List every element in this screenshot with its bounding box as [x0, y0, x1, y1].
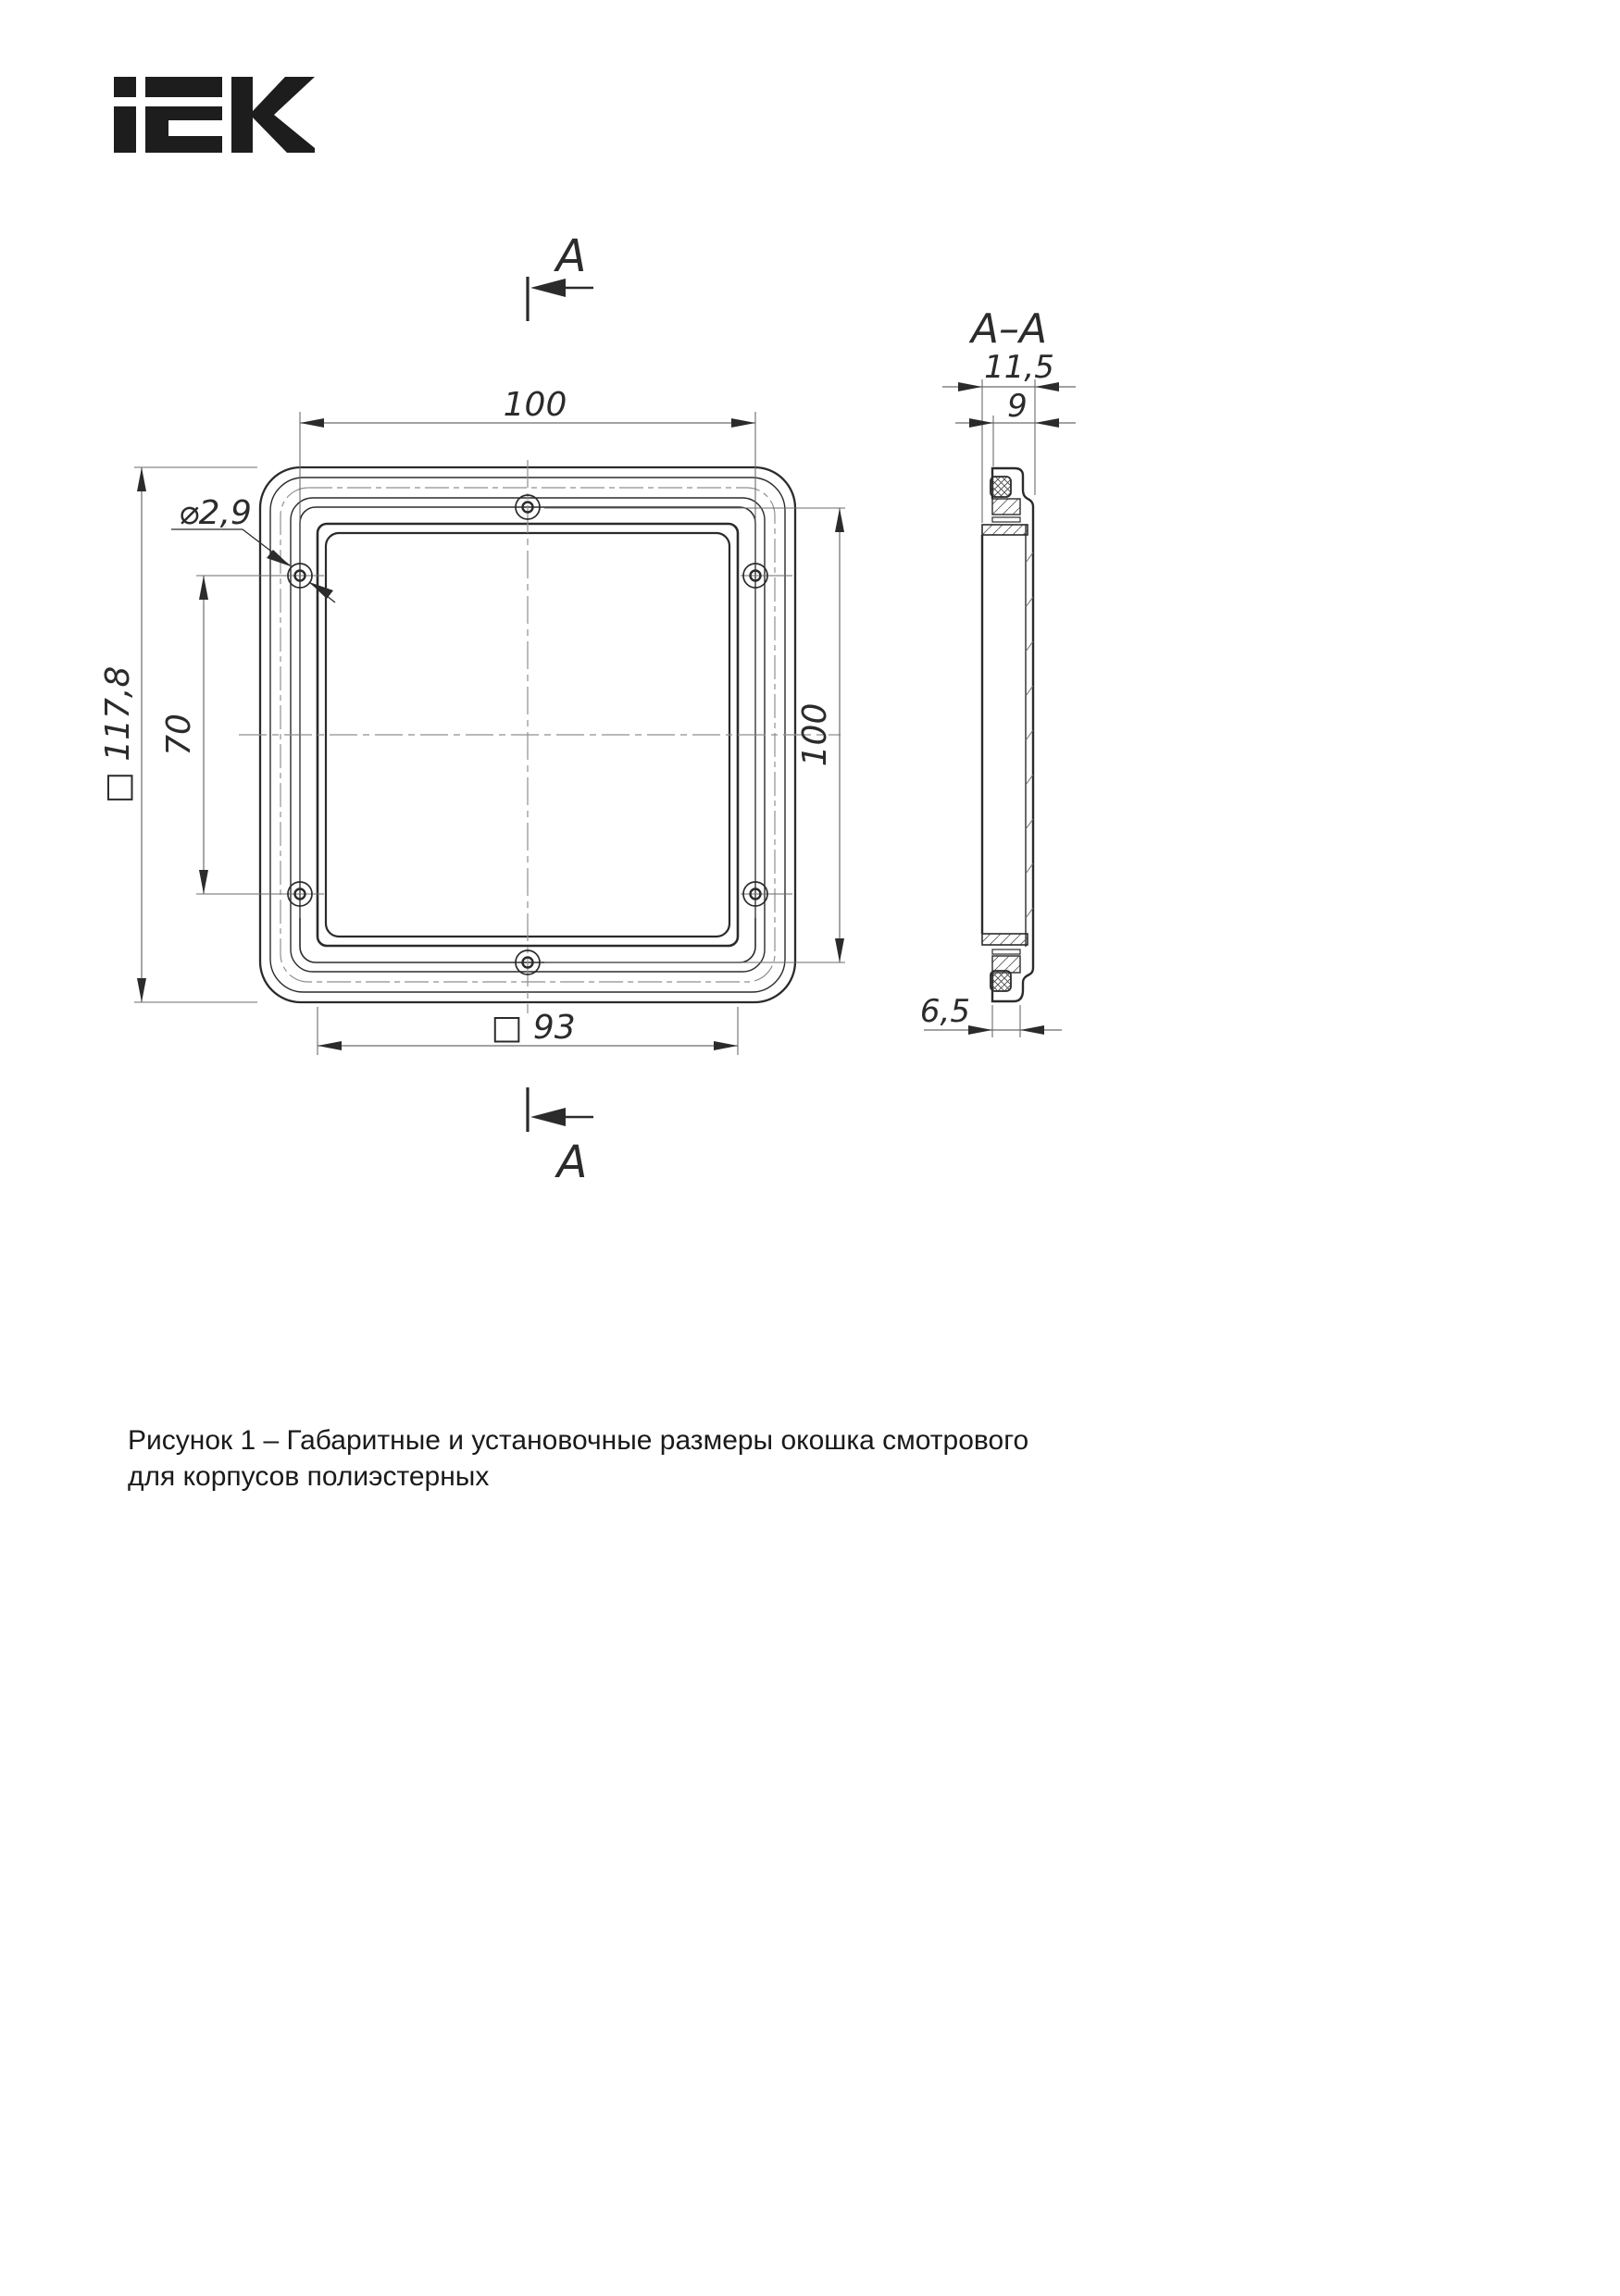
dim-value-hole-diameter: ⌀2,9 — [179, 494, 252, 532]
flange-top — [982, 525, 1028, 535]
dim-value-top-width: 100 — [504, 386, 567, 424]
dim-value-clip-width: 6,5 — [920, 993, 970, 1030]
dim-arrow — [969, 418, 993, 428]
leader-arrow — [309, 582, 333, 599]
dim-arrow — [318, 1041, 342, 1050]
section-letter-bottom: A — [555, 1136, 588, 1188]
dim-value-total-depth: 11,5 — [984, 349, 1054, 386]
dim-value-right-height: 100 — [796, 703, 834, 767]
logo-e-top-bar — [145, 77, 222, 97]
section-profile-outline — [992, 468, 1033, 1001]
dim-arrow — [199, 576, 208, 600]
logo-i-dot — [114, 77, 136, 97]
gasket-top — [991, 477, 1011, 497]
clip-bar-top — [992, 517, 1020, 522]
section-cut-marker-top: A — [528, 230, 593, 321]
flange-bottom — [982, 934, 1028, 945]
dim-arrow — [137, 978, 146, 1002]
figure-caption: Рисунок 1 – Габаритные и установочные ра… — [128, 1425, 1028, 1492]
dimension-inner-square: □ 93 — [318, 1009, 738, 1050]
dim-arrow — [835, 508, 844, 532]
dim-value-inner-square: □ 93 — [491, 1009, 575, 1047]
logo-i-body — [114, 106, 136, 153]
dim-arrow — [958, 382, 982, 391]
dimension-clip-width: 6,5 — [920, 993, 1062, 1035]
dimension-total-depth: 11,5 — [942, 349, 1076, 391]
section-view: A–A 11,5 9 — [920, 305, 1076, 1037]
dim-value-body-depth: 9 — [1007, 388, 1028, 425]
dim-arrow — [835, 938, 844, 962]
cut-direction-arrow — [530, 1108, 566, 1126]
logo-k — [231, 77, 315, 153]
section-title: A–A — [968, 305, 1047, 353]
dim-arrow — [714, 1041, 738, 1050]
dim-arrow — [968, 1025, 992, 1035]
dim-value-hole-spacing: 70 — [160, 714, 198, 756]
logo-e-body — [145, 106, 222, 153]
dim-arrow — [1020, 1025, 1044, 1035]
front-view: 100 □ 117,8 70 100 ⌀2,9 — [99, 386, 845, 1055]
technical-drawing-canvas: A — [0, 0, 1620, 2296]
dim-arrow — [1035, 418, 1059, 428]
dim-arrow — [731, 418, 755, 428]
dimension-top-width: 100 — [300, 386, 755, 428]
clip-step-top — [992, 499, 1020, 515]
dimension-hole-diameter: ⌀2,9 — [171, 494, 335, 602]
caption-line-1: Рисунок 1 – Габаритные и установочные ра… — [128, 1425, 1028, 1456]
dimension-body-depth: 9 — [955, 388, 1076, 428]
clip-bar-bottom — [992, 949, 1020, 954]
gasket-bottom — [991, 971, 1011, 991]
caption-line-2: для корпусов полиэстерных — [128, 1461, 489, 1492]
dim-arrow — [300, 418, 324, 428]
dim-arrow — [137, 467, 146, 491]
dim-value-outer-square: □ 117,8 — [99, 666, 137, 804]
datasheet-page: A — [0, 0, 1620, 2296]
iek-logo — [114, 77, 315, 153]
section-cut-marker-bottom: A — [528, 1087, 593, 1188]
section-letter-top: A — [554, 230, 587, 282]
dim-arrow — [199, 870, 208, 894]
dimension-hole-vertical-spacing: 70 — [160, 576, 208, 894]
dimension-outer-square: □ 117,8 — [99, 467, 146, 1002]
